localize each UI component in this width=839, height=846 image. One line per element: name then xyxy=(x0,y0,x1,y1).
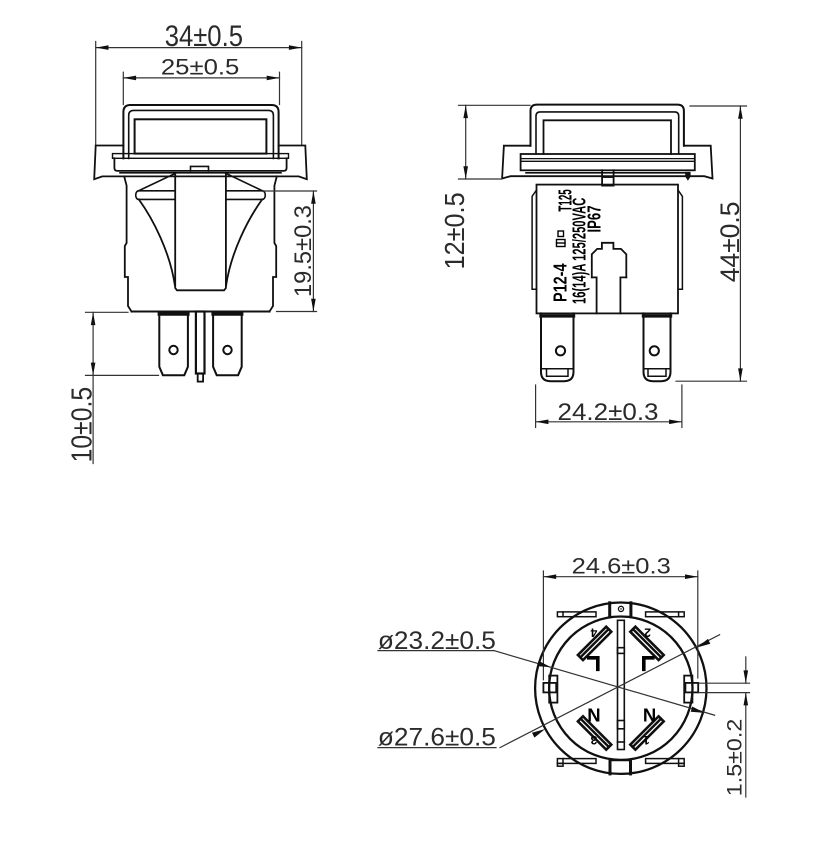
svg-text:N: N xyxy=(643,705,656,726)
svg-text:24.6±0.3: 24.6±0.3 xyxy=(572,554,671,579)
svg-text:1.5±0.2: 1.5±0.2 xyxy=(724,719,747,797)
svg-text:3: 3 xyxy=(590,733,597,747)
svg-text:12±0.5: 12±0.5 xyxy=(439,192,470,269)
svg-text:44±0.5: 44±0.5 xyxy=(715,202,745,283)
svg-text:19.5±0.3: 19.5±0.3 xyxy=(290,205,317,297)
svg-text:N: N xyxy=(587,705,600,726)
svg-text:4: 4 xyxy=(590,625,597,639)
svg-text:10±0.5: 10±0.5 xyxy=(67,387,99,463)
svg-text:ø27.6±0.5: ø27.6±0.5 xyxy=(378,725,496,752)
svg-text:1: 1 xyxy=(643,733,650,747)
svg-text:IP67: IP67 xyxy=(584,206,605,233)
svg-text:P12-4: P12-4 xyxy=(550,263,571,302)
svg-text:24.2±0.3: 24.2±0.3 xyxy=(558,399,659,426)
svg-text:25±0.5: 25±0.5 xyxy=(161,54,239,79)
svg-text:34±0.5: 34±0.5 xyxy=(165,20,243,53)
svg-text:2: 2 xyxy=(644,625,651,639)
svg-text:ø23.2±0.5: ø23.2±0.5 xyxy=(378,628,496,655)
